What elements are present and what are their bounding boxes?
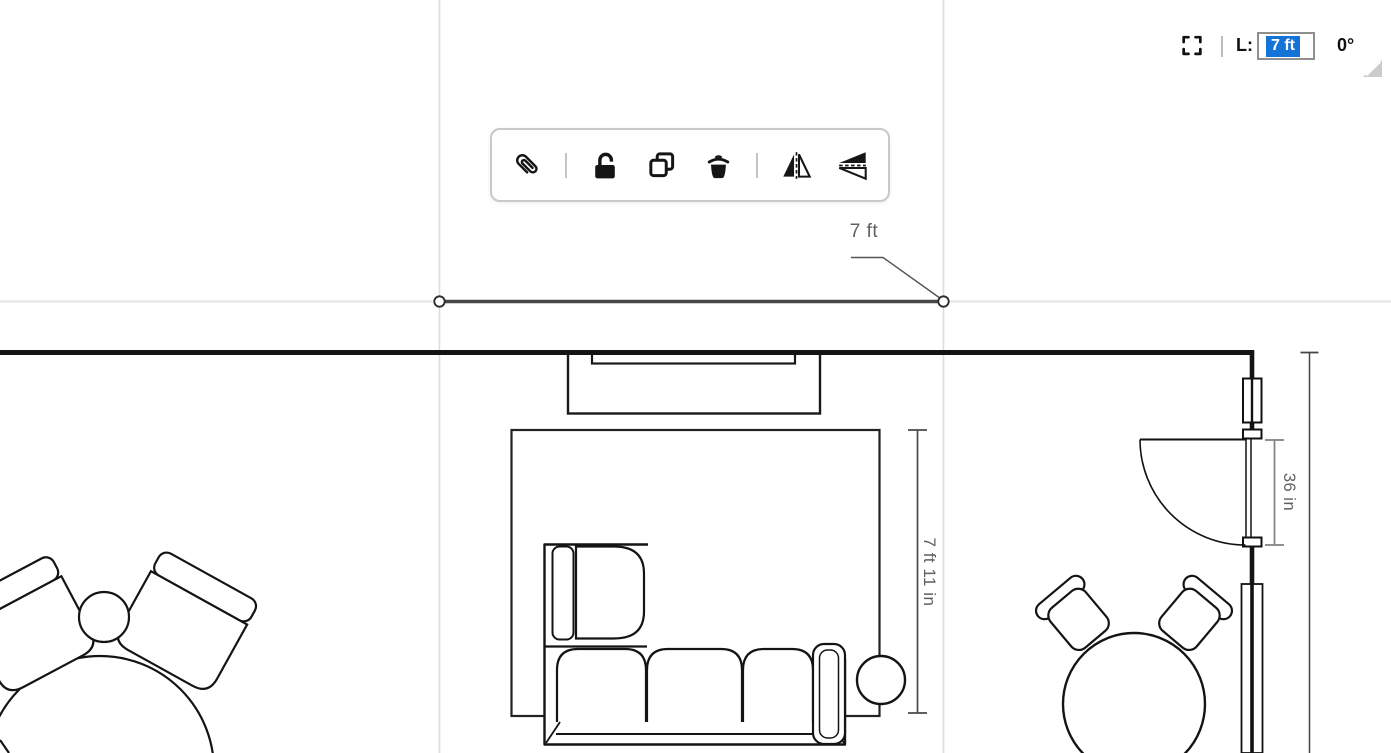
wall-endpoint-handle-left[interactable]	[434, 296, 444, 306]
selected-wall[interactable]	[434, 258, 948, 307]
wall-label-leader	[851, 258, 941, 299]
lock-button[interactable]	[586, 145, 624, 185]
wall-endpoint-handle-right[interactable]	[938, 296, 948, 306]
door[interactable]	[1140, 430, 1262, 547]
toolbar-divider	[756, 153, 758, 178]
flip-vertical-icon	[836, 149, 869, 182]
window-top[interactable]	[1243, 379, 1262, 423]
door-width-label: 36 in	[1280, 452, 1298, 532]
resize-grip[interactable]	[1359, 59, 1384, 84]
attach-icon	[510, 148, 544, 182]
right-wall-dimension-line	[1301, 352, 1319, 753]
fullscreen-icon	[1179, 33, 1205, 58]
angle-value: 0°	[1337, 35, 1354, 56]
toolbar-divider	[565, 153, 567, 178]
duplicate-icon	[645, 148, 679, 182]
length-label: L:	[1236, 35, 1253, 56]
wall-length-label: 7 ft	[838, 221, 890, 243]
resize-grip-icon	[1359, 59, 1384, 79]
window-bottom[interactable]	[1242, 584, 1263, 753]
dining-table	[1063, 633, 1205, 753]
door-swing-arc	[1140, 440, 1246, 546]
duplicate-button[interactable]	[643, 145, 681, 185]
floorplan-drawing	[0, 0, 1391, 753]
length-input[interactable]: 7 ft	[1257, 32, 1315, 60]
flip-horizontal-icon	[780, 149, 813, 182]
rug-height-label: 7 ft 11 in	[919, 512, 939, 632]
floorplan-canvas[interactable]: 7 ft 7 ft 11 in 36 in	[0, 0, 1391, 753]
flip-vertical-button[interactable]	[834, 145, 872, 185]
dining-set[interactable]	[1029, 572, 1240, 753]
trash-icon	[702, 149, 735, 182]
sectional-sofa[interactable]	[545, 545, 846, 745]
flip-horizontal-button[interactable]	[777, 145, 815, 185]
length-input-selected-text: 7 ft	[1266, 36, 1300, 57]
delete-button[interactable]	[699, 145, 737, 185]
side-table[interactable]	[857, 656, 905, 704]
tv-console[interactable]	[568, 353, 820, 414]
lock-open-icon	[588, 149, 621, 182]
attach-button[interactable]	[508, 145, 546, 185]
inspector-divider	[1221, 36, 1223, 57]
fullscreen-button[interactable]	[1179, 33, 1205, 63]
context-toolbar	[490, 128, 890, 202]
